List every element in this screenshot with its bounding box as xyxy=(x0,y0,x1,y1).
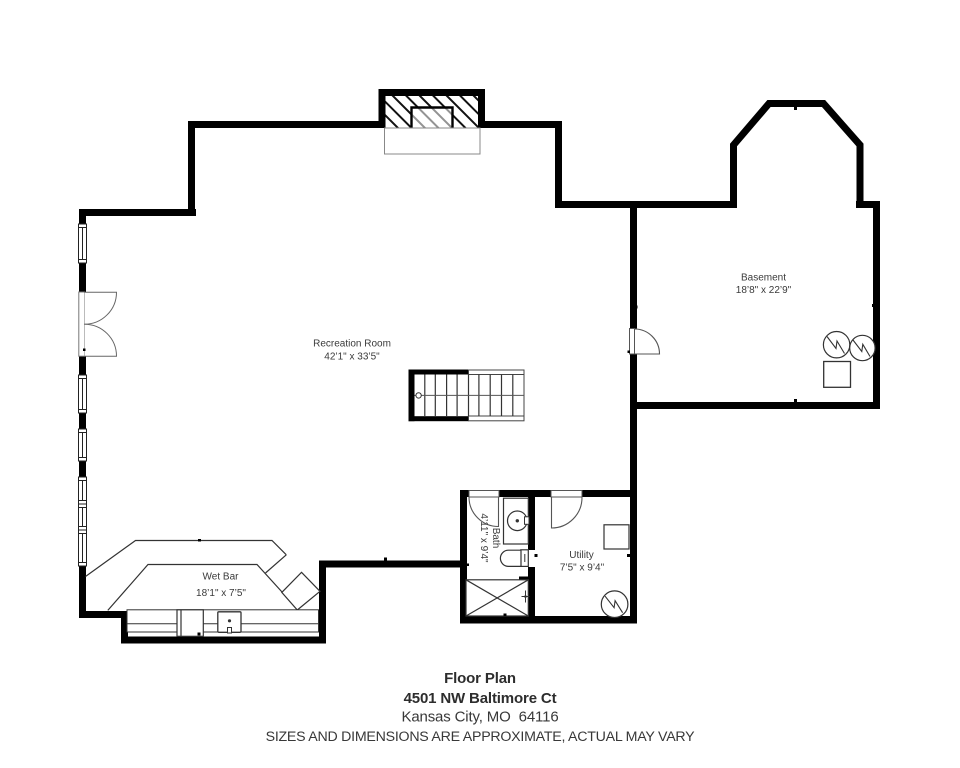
svg-text:Wet Bar: Wet Bar xyxy=(203,572,240,583)
svg-text:4501 NW Baltimore Ct: 4501 NW Baltimore Ct xyxy=(404,690,557,707)
svg-text:Utility: Utility xyxy=(569,550,593,561)
svg-text:Floor Plan: Floor Plan xyxy=(444,670,516,687)
svg-text:Bath: Bath xyxy=(490,528,501,549)
svg-text:SIZES AND DIMENSIONS ARE APPRO: SIZES AND DIMENSIONS ARE APPROXIMATE, AC… xyxy=(266,729,696,745)
svg-text:18’8" x 22’9": 18’8" x 22’9" xyxy=(736,285,792,296)
svg-text:7’5" x 9’4": 7’5" x 9’4" xyxy=(560,563,605,574)
svg-text:4’11" x 9’4": 4’11" x 9’4" xyxy=(478,513,489,563)
svg-text:18’1" x 7’5": 18’1" x 7’5" xyxy=(196,588,246,599)
svg-text:Basement: Basement xyxy=(741,272,786,283)
svg-text:Recreation Room: Recreation Room xyxy=(313,339,391,350)
svg-text:Kansas City, MO 64116: Kansas City, MO 64116 xyxy=(401,709,558,726)
svg-text:42’1" x 33’5": 42’1" x 33’5" xyxy=(324,352,380,363)
